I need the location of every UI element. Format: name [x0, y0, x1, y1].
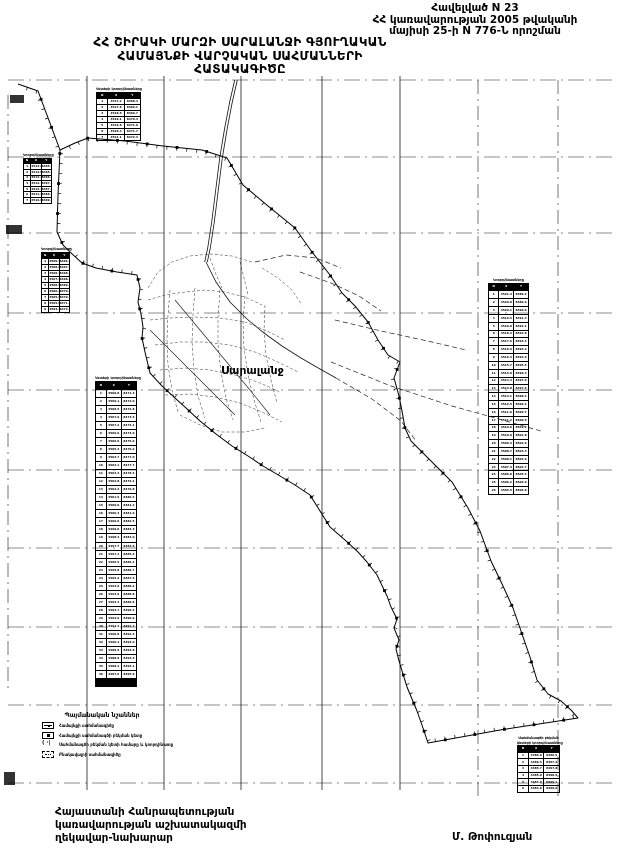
boundary-point-marker: [326, 521, 329, 524]
table-row: 54518.88492.1: [489, 322, 529, 330]
table-cell: 8493.8: [121, 647, 136, 655]
table-cell: 8493.0: [121, 639, 136, 647]
appendix-line: Հավելված N 23: [330, 3, 620, 15]
table-cell: 4511.2: [499, 416, 514, 424]
boundary-tick: [285, 222, 287, 224]
table-cell: 8472.0: [59, 307, 69, 313]
column-header: X: [499, 283, 514, 291]
table-grid: NXY14521.48489.224520.88489.934520.18490…: [488, 283, 529, 495]
boundary-tick: [392, 608, 395, 609]
legend-item: Համայնքի սահմանագիծը: [42, 722, 212, 729]
table-cell: 8493.4: [514, 338, 529, 346]
boundary-tick: [225, 158, 226, 161]
boundary-tick: [417, 711, 420, 712]
table-row: 214508.78503.3: [489, 447, 529, 455]
table-row: 44507.98473.5: [96, 413, 137, 421]
column-header: X: [528, 746, 544, 753]
table-cell: 26: [96, 590, 107, 598]
table-cell: 8489.6: [121, 598, 136, 606]
boundary-point-marker: [473, 733, 476, 736]
table-cell: 33: [96, 647, 107, 655]
table-cell: 4487.6: [106, 671, 121, 679]
table-cell: 4486.3: [528, 759, 544, 766]
table-cell: 4518.2: [499, 330, 514, 338]
table-cell: 8474.1: [121, 421, 136, 429]
boundary-point-marker: [58, 152, 61, 155]
boundary-point-marker: [412, 702, 415, 705]
boundary-tick: [353, 307, 355, 309]
table-cell: 8500.5: [514, 416, 529, 424]
table-cell: 4515.7: [499, 361, 514, 369]
table-row: 74521.18472.3: [97, 134, 141, 140]
table-grid: NXY14509.48466.824508.88467.534508.18468…: [41, 252, 70, 313]
boundary-tick: [494, 728, 495, 731]
table-cell: 8495.1: [121, 663, 136, 671]
table-grid: NXY14514.68465.224514.08465.934513.38466…: [23, 158, 52, 204]
table-cell: 4489.5: [106, 647, 121, 655]
boundary-tick: [427, 459, 429, 461]
table-cell: 3: [518, 766, 529, 773]
table-row: 204497.78484.6: [96, 542, 137, 550]
table-grid: NXY14486.98496.524486.38497.234485.78497…: [517, 745, 560, 792]
table-row: 164500.38481.9: [96, 510, 137, 518]
table-cell: 8497.2: [544, 759, 560, 766]
boundary-tick: [52, 137, 55, 138]
table-cell: 17: [489, 416, 499, 424]
table-cell: 8499.7: [514, 408, 529, 416]
settlement-street: [180, 415, 265, 432]
table-cell: 8479.1: [121, 478, 136, 486]
table-cell: 31: [96, 631, 107, 639]
boundary-tick: [375, 340, 378, 342]
boundary-tick: [505, 596, 508, 597]
table-cell: 8487.5: [121, 574, 136, 582]
table-cell: 8488.8: [121, 590, 136, 598]
table-cell: 4512.5: [499, 401, 514, 409]
table-cell: 24: [489, 471, 499, 479]
table-cell: 4483.8: [528, 786, 544, 793]
boundary-tick: [182, 402, 184, 404]
boundary-tick: [413, 445, 415, 447]
settlement-name-label: Սարալանջ: [221, 364, 284, 377]
table-cell: 22: [489, 455, 499, 463]
table-cell: 8481.2: [121, 502, 136, 510]
table-row: 344488.98494.5: [96, 655, 137, 663]
table-cell: 8472.0: [121, 397, 136, 405]
legend-item-label: Սահմանագծի բեկման կետի համարը և կոորդինա…: [59, 742, 173, 747]
table-cell: 10: [96, 462, 107, 470]
boundary-tick: [488, 560, 491, 561]
table-caption: Սահմանագծի բեկման: [517, 736, 560, 740]
table-cell: 1: [518, 752, 529, 759]
table-cell: 7: [96, 437, 107, 445]
boundary-point-marker: [533, 723, 536, 726]
table-cell: 8492.4: [121, 631, 136, 639]
boundary-tick: [234, 174, 237, 176]
table-cell: 14: [96, 494, 107, 502]
table-cell: 9: [96, 454, 107, 462]
boundary-point-marker: [50, 126, 53, 129]
table-cell: 8497.6: [514, 385, 529, 393]
table-cell: 16: [96, 510, 107, 518]
appendix-block: Հավելված N 23 ՀՀ կառավարության 2005 թվակ…: [330, 3, 620, 38]
boundary-point-marker: [166, 389, 169, 392]
field-road: [336, 378, 416, 441]
boundary-point-marker: [60, 241, 63, 244]
table-row: 194510.08501.8: [489, 432, 529, 440]
boundary-tick: [388, 356, 390, 359]
boundary-tick: [277, 215, 279, 217]
table-row: 274493.38489.6: [96, 598, 137, 606]
table-cell: 4507.9: [106, 413, 121, 421]
table-grid: NXY14517.28468.424517.88469.134518.58469…: [96, 92, 141, 141]
table-cell: 8501.8: [514, 432, 529, 440]
boundary-tick: [298, 236, 301, 238]
boundary-point-marker: [542, 687, 545, 690]
boundary-point-marker: [402, 674, 405, 677]
table-row: 254494.68488.2: [96, 582, 137, 590]
boundary-tick: [69, 146, 70, 149]
table-cell: 4493.9: [106, 590, 121, 598]
table-row: 64483.88499.8: [518, 786, 560, 793]
legend-title: Պայմանական նշաններ: [42, 712, 162, 719]
boundary-point-marker: [423, 730, 426, 733]
boundary-tick: [174, 395, 176, 397]
boundary-tick: [388, 599, 391, 600]
table-row: 104515.78495.5: [489, 361, 529, 369]
table-cell: 8496.3: [514, 369, 529, 377]
legend-item-label: Բնակավայրի սահմանագիծը: [59, 752, 121, 757]
title-line: ՀՀ ՇԻՐԱԿԻ ՄԱՐԶԻ ՍԱՐԱԼԱՆՋԻ ԳՅՈՒՂԱԿԱՆ: [40, 36, 440, 50]
table-row: 84505.38476.2: [96, 445, 137, 453]
table-cell: 20: [96, 542, 107, 550]
table-total-row: [96, 679, 137, 687]
table-cell: 29: [96, 614, 107, 622]
table-cell: 4490.1: [106, 639, 121, 647]
boundary-tick: [370, 331, 373, 333]
boundary-point-marker: [347, 298, 350, 301]
table-cell: 8480.4: [121, 494, 136, 502]
table-cell: 4490.8: [106, 631, 121, 639]
table-cell: 21: [96, 550, 107, 558]
table-row: 94504.78477.0: [96, 454, 137, 462]
title-line: ՀԱՄԱՅՆՔԻ ՎԱՐՉԱԿԱՆ ՍԱՀՄԱՆՆԵՐԻ: [40, 50, 440, 64]
table-cell: 8494.2: [514, 346, 529, 354]
boundary-point-marker: [520, 632, 523, 635]
table-cell: 2: [489, 299, 499, 307]
table-cell: 4506.0: [106, 437, 121, 445]
table-cell: 5: [96, 421, 107, 429]
table-cell: 8472.8: [121, 405, 136, 413]
page-title: ՀՀ ՇԻՐԱԿԻ ՄԱՐԶԻ ՍԱՐԱԼԱՆՋԻ ԳՅՈՒՂԱԿԱՆ ՀԱՄԱ…: [40, 36, 440, 77]
table-cell: 4496.5: [106, 558, 121, 566]
table-cell: 8477.0: [121, 454, 136, 462]
legend-item: Համայնքի սահմանագծի բեկման կետը: [42, 732, 212, 739]
boundary-tick: [304, 244, 307, 246]
table-cell: 19: [489, 432, 499, 440]
table-cell: 3: [489, 307, 499, 315]
table-cell: 4516.3: [499, 354, 514, 362]
table-cell: 12: [489, 377, 499, 385]
table-cell: 4513.1: [499, 393, 514, 401]
table-cell: 8478.3: [121, 470, 136, 478]
boundary-point-marker: [367, 321, 370, 324]
table-cell: 23: [489, 463, 499, 471]
table-cell: 4492.0: [106, 614, 121, 622]
table-cell: 8485.4: [121, 550, 136, 558]
table-cell: 2: [518, 759, 529, 766]
boundary-tick: [512, 615, 515, 616]
legend-item: Սահմանագծի բեկման կետի համարը և կոորդինա…: [42, 741, 212, 748]
table-cell: 4517.6: [499, 338, 514, 346]
settlement-road: [175, 300, 270, 415]
adjacent-icon: [42, 741, 54, 748]
table-row: 94516.38494.9: [489, 354, 529, 362]
table-cell: 20: [489, 440, 499, 448]
table-cell: 8499.1: [514, 401, 529, 409]
table-cell: 8: [489, 346, 499, 354]
boundary-point-marker: [562, 719, 565, 722]
boundary-point-marker: [311, 251, 314, 254]
table-row: 184510.68501.2: [489, 424, 529, 432]
boundary-point-marker: [396, 645, 399, 648]
illegible-label: [6, 225, 22, 234]
signatory-title: Հայաստանի Հանրապետության կառավարության ա…: [55, 806, 247, 845]
table-cell: 15: [489, 401, 499, 409]
table-cell: 8494.5: [121, 655, 136, 663]
table-cell: 4509.1: [106, 397, 121, 405]
table-cell: 14: [489, 393, 499, 401]
table-cell: 4495.2: [106, 574, 121, 582]
table-cell: 22: [96, 558, 107, 566]
boundary-tick: [558, 700, 560, 703]
boundary-tick: [549, 696, 551, 699]
boundary-tick: [26, 87, 27, 90]
boundary-point-marker: [383, 589, 386, 592]
table-cell: 8502.6: [514, 440, 529, 448]
table-cell: 8488.2: [121, 582, 136, 590]
table-row: 84516.98494.2: [489, 346, 529, 354]
table-cell: 4498.4: [106, 534, 121, 542]
table-row: 184499.08483.3: [96, 526, 137, 534]
table-cell: 11: [96, 470, 107, 478]
boundary-tick: [397, 361, 399, 364]
highway-edge: [205, 80, 235, 262]
boundary-point-marker: [404, 426, 407, 429]
table-cell: 4510.8: [31, 198, 41, 204]
table-cell: 18: [96, 526, 107, 534]
table-cell: 8477.7: [121, 462, 136, 470]
table-row: 244506.88505.4: [489, 471, 529, 479]
boundary-point-marker: [270, 207, 273, 210]
coordinate-table: ԿոորդինատներըNXY14514.68465.224514.08465…: [23, 153, 52, 204]
boundary-tick: [522, 643, 525, 644]
coordinate-table: Կետերի կոորդինատներըNXY14509.88471.32450…: [95, 376, 137, 687]
table-cell: 34: [96, 655, 107, 663]
table-cell: 8503.3: [514, 447, 529, 455]
table-row: 14509.88471.3: [96, 389, 137, 397]
table-cell: 5: [489, 322, 499, 330]
legend-item: Բնակավայրի սահմանագիծը: [42, 751, 212, 758]
table-cell: 4516.9: [499, 346, 514, 354]
boundary-tick: [363, 555, 365, 557]
boundary-point-marker: [146, 143, 149, 146]
boundary-tick: [262, 203, 264, 205]
table-row: 224496.58486.1: [96, 558, 137, 566]
table-cell: 4515.0: [499, 369, 514, 377]
legend-item-label: Համայնքի սահմանագիծը: [59, 723, 114, 728]
table-row: 54507.28474.1: [96, 421, 137, 429]
boundary-point-marker: [503, 728, 506, 731]
table-cell: 8486.1: [121, 558, 136, 566]
boundary-point-marker: [293, 226, 296, 229]
boundary-point-marker: [310, 496, 313, 499]
table-cell: 8492.1: [514, 322, 529, 330]
boundary-tick: [427, 740, 430, 741]
table-cell: 4514.4: [499, 377, 514, 385]
boundary-point-icon: [42, 732, 54, 739]
column-header: Y: [514, 283, 529, 291]
table-cell: [121, 679, 136, 687]
table-row: 304491.48491.7: [96, 623, 137, 631]
boundary-point-marker: [57, 182, 60, 185]
table-cell: 4508.5: [106, 405, 121, 413]
table-cell: 8473.5: [121, 413, 136, 421]
boundary-tick: [464, 733, 465, 736]
table-cell: 4505.3: [106, 445, 121, 453]
table-row: 224508.18503.9: [489, 455, 529, 463]
boundary-point-marker: [398, 397, 401, 400]
table-cell: 8492.8: [514, 330, 529, 338]
coordinate-table: ԿոորդինատներըNXY14509.48466.824508.88467…: [41, 247, 70, 313]
table-cell: 21: [489, 447, 499, 455]
table-cell: 8490.6: [514, 307, 529, 315]
boundary-point-marker: [56, 212, 59, 215]
table-header-row: NXY: [518, 746, 560, 753]
table-cell: 4485.7: [528, 766, 544, 773]
boundary-point-marker: [247, 188, 250, 191]
table-cell: 4510.0: [499, 432, 514, 440]
boundary-tick: [270, 467, 272, 470]
table-row: 324490.18493.0: [96, 639, 137, 647]
boundary-tick: [92, 264, 93, 267]
boundary-point-marker: [498, 577, 501, 580]
table-caption: Կոորդինատները: [41, 247, 70, 251]
table-row: 334489.58493.8: [96, 647, 137, 655]
table-cell: 8497.8: [544, 766, 560, 773]
table-cell: 3: [96, 405, 107, 413]
table-cell: 10: [489, 361, 499, 369]
boundary-point-marker: [442, 472, 445, 475]
boundary-tick: [144, 348, 147, 349]
highway-edge: [207, 80, 237, 262]
table-cell: 6: [518, 786, 529, 793]
table-cell: 32: [96, 639, 107, 647]
boundary-tick: [317, 504, 320, 506]
table-row: 204509.38502.6: [489, 440, 529, 448]
table-cell: 4: [518, 772, 529, 779]
table-cell: 8499.8: [544, 786, 560, 793]
table-cell: 4511.9: [499, 408, 514, 416]
boundary-point-marker: [205, 150, 208, 153]
table-cell: 8491.7: [121, 623, 136, 631]
table-row: 244495.28487.5: [96, 574, 137, 582]
boundary-tick: [375, 571, 378, 573]
boundary-point-marker: [460, 495, 463, 498]
boundary-point-marker: [474, 522, 477, 525]
table-cell: 13: [489, 385, 499, 393]
boundary-tick: [535, 681, 538, 683]
settlement-street: [264, 305, 277, 403]
boundary-tick: [204, 422, 206, 424]
community-boundary: [18, 84, 60, 150]
table-row: 34485.78497.8: [518, 766, 560, 773]
table-cell: 4506.8: [499, 471, 514, 479]
boundary-line-icon: [42, 722, 54, 729]
table-cell: 8497.0: [514, 377, 529, 385]
table-row: 24486.38497.2: [518, 759, 560, 766]
boundary-point-marker: [138, 307, 141, 310]
boundary-tick: [516, 624, 519, 625]
table-cell: 28: [96, 606, 107, 614]
table-cell: 4506.2: [499, 479, 514, 487]
table-row: 34520.18490.6: [489, 307, 529, 315]
table-cell: 1: [489, 291, 499, 299]
boundary-tick: [501, 587, 504, 588]
table-row: 44519.58491.3: [489, 314, 529, 322]
table-cell: 4500.9: [106, 502, 121, 510]
table-row: 154500.98481.2: [96, 502, 137, 510]
illegible-label: [10, 95, 24, 103]
signatory-line: Հայաստանի Հանրապետության: [55, 806, 247, 819]
boundary-tick: [304, 488, 306, 491]
table-cell: 36: [96, 671, 107, 679]
table-cell: 4518.8: [499, 322, 514, 330]
table-cell: 8474.9: [121, 429, 136, 437]
boundary-tick: [56, 146, 59, 147]
scanned-map-page: Սարալանջ Հավելված N 23 ՀՀ կառավարության …: [0, 0, 622, 848]
boundary-tick: [531, 672, 534, 673]
title-line: ՀԱՏԱԿԱԳԻԾԸ: [40, 63, 440, 77]
boundary-tick: [253, 457, 255, 460]
signatory-line: կառավարության աշխատակազմի: [55, 819, 247, 832]
table-cell: 13: [96, 486, 107, 494]
boundary-tick: [406, 684, 409, 685]
boundary-tick: [400, 418, 403, 419]
table-cell: 30: [96, 623, 107, 631]
table-cell: 4507.4: [499, 463, 514, 471]
table-cell: 4491.4: [106, 623, 121, 631]
table-cell: 25: [96, 582, 107, 590]
column-header: Y: [121, 381, 136, 389]
boundary-point-marker: [188, 410, 191, 413]
table-row: 124514.48497.0: [489, 377, 529, 385]
table-caption: Կոորդինատները: [488, 278, 529, 282]
boundary-point-marker: [486, 549, 489, 552]
boundary-point-marker: [444, 738, 447, 741]
table-cell: 4521.1: [108, 134, 124, 140]
table-cell: 4499.0: [106, 526, 121, 534]
table-cell: 16: [489, 408, 499, 416]
table-cell: 8498.5: [544, 772, 560, 779]
table-row: 144513.18498.4: [489, 393, 529, 401]
table-cell: 4484.4: [528, 779, 544, 786]
boundary-tick: [525, 652, 528, 653]
signatory-line: ղեկավար-նախարար: [55, 832, 247, 845]
table-row: 134502.28479.8: [96, 486, 137, 494]
table-row: 74517.68493.4: [489, 338, 529, 346]
table-cell: 4488.2: [106, 663, 121, 671]
